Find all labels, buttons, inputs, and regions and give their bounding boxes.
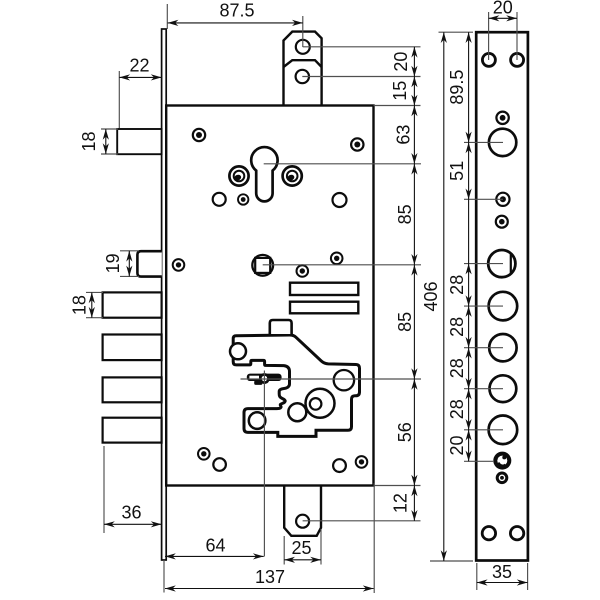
svg-text:28: 28 (447, 317, 467, 337)
svg-text:15: 15 (390, 81, 410, 101)
svg-text:137: 137 (255, 567, 285, 587)
svg-text:25: 25 (291, 538, 311, 558)
svg-text:18: 18 (70, 295, 90, 315)
svg-text:406: 406 (421, 281, 441, 311)
svg-text:20: 20 (391, 52, 411, 72)
svg-text:35: 35 (492, 562, 512, 582)
svg-text:20: 20 (447, 435, 467, 455)
svg-text:20: 20 (493, 0, 513, 18)
svg-text:85: 85 (395, 312, 415, 332)
svg-text:51: 51 (447, 161, 467, 181)
svg-text:28: 28 (447, 399, 467, 419)
svg-text:18: 18 (79, 131, 99, 151)
svg-text:36: 36 (121, 503, 141, 523)
svg-text:89.5: 89.5 (447, 70, 467, 105)
svg-text:87.5: 87.5 (219, 1, 254, 21)
svg-text:28: 28 (447, 275, 467, 295)
svg-text:56: 56 (395, 422, 415, 442)
svg-text:63: 63 (394, 125, 414, 145)
svg-text:19: 19 (103, 253, 123, 273)
svg-text:22: 22 (129, 56, 149, 76)
svg-text:12: 12 (391, 493, 411, 513)
svg-text:85: 85 (395, 204, 415, 224)
svg-text:28: 28 (447, 358, 467, 378)
svg-text:64: 64 (205, 536, 225, 556)
